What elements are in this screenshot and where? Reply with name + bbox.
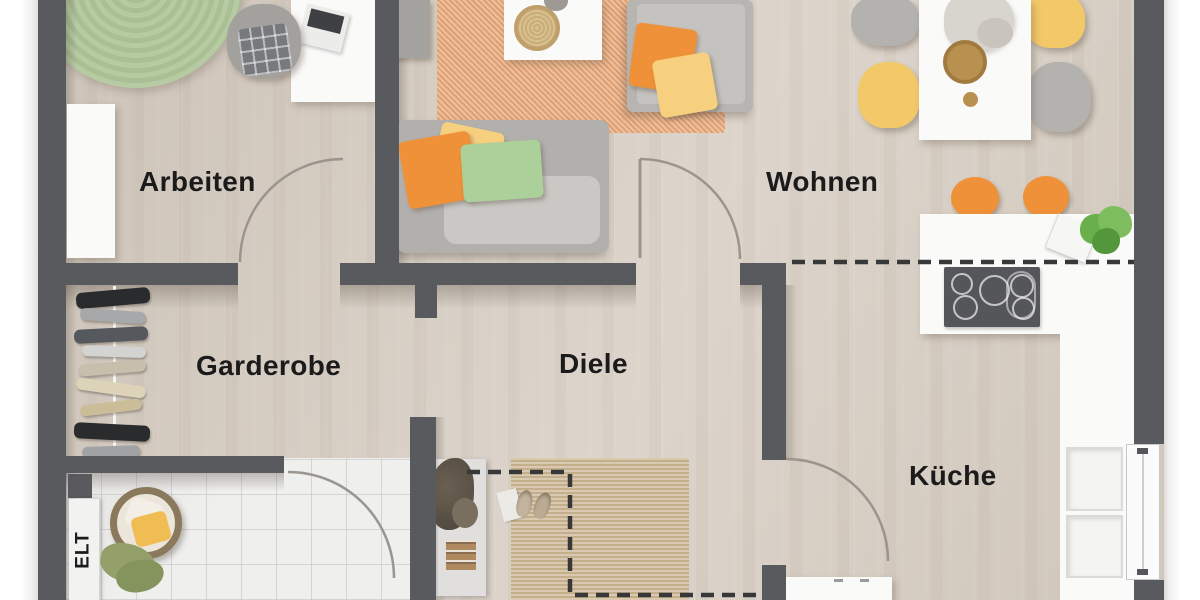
room-label-wohnen: Wohnen bbox=[766, 166, 878, 198]
dashed-outline-diele bbox=[467, 472, 764, 595]
room-label-garderobe: Garderobe bbox=[196, 350, 341, 382]
room-label-diele: Diele bbox=[559, 348, 628, 380]
room-label-kueche: Küche bbox=[909, 460, 997, 492]
plan-overlay bbox=[0, 0, 1200, 600]
door-arc-wohnen bbox=[640, 159, 740, 259]
outside-right bbox=[1164, 0, 1200, 600]
door-arc-bathroom bbox=[288, 472, 394, 578]
room-label-arbeiten: Arbeiten bbox=[139, 166, 256, 198]
outside-left bbox=[0, 0, 38, 600]
door-arc-kueche bbox=[786, 459, 888, 561]
floor-plan: ELT Arbeiten Wohnen Garderobe Diele Küch… bbox=[0, 0, 1200, 600]
